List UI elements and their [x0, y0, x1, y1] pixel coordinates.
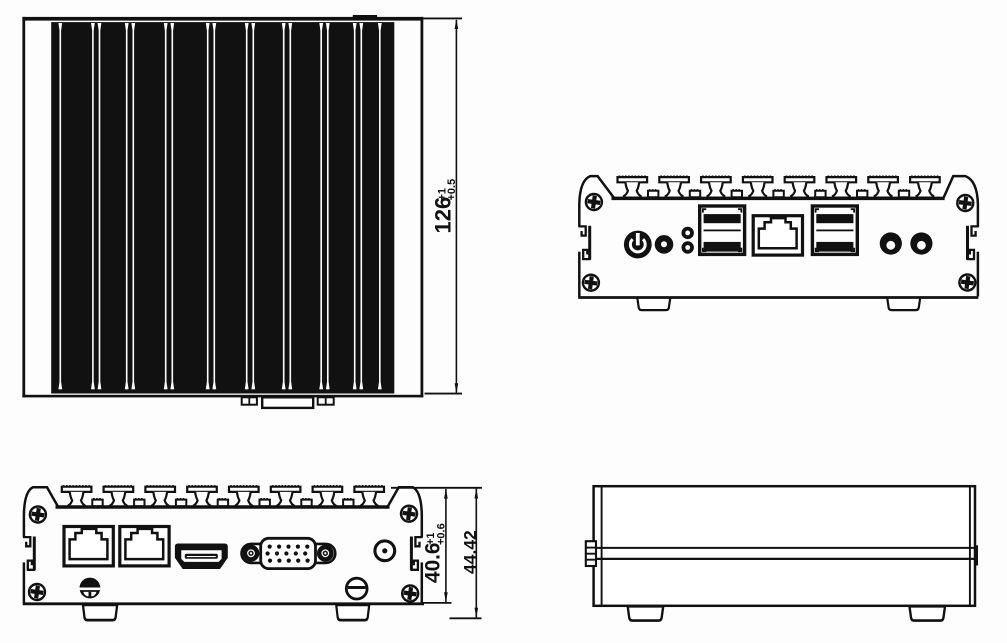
svg-text:40.6: 40.6 — [422, 543, 445, 583]
svg-text:126: 126 — [431, 197, 456, 234]
svg-text:+0.5: +0.5 — [446, 179, 458, 201]
svg-text:44.42: 44.42 — [460, 530, 480, 574]
svg-text:+0.6: +0.6 — [436, 523, 448, 545]
